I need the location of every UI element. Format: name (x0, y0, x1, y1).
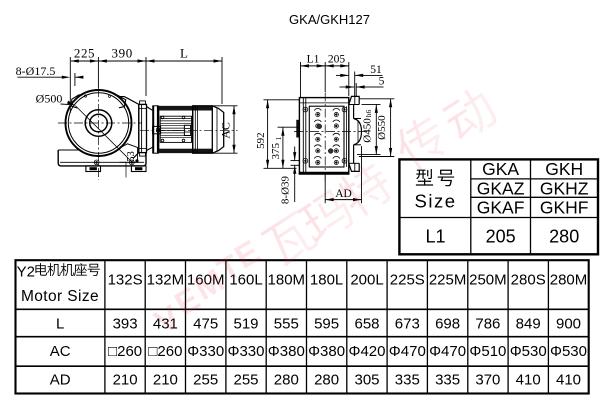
svg-text:h6: h6 (364, 110, 373, 118)
svg-text:1: 1 (275, 136, 283, 140)
svg-text:555: 555 (274, 315, 299, 332)
svg-text:Φ510: Φ510 (469, 343, 506, 360)
svg-text:673: 673 (395, 315, 420, 332)
svg-text:210: 210 (153, 372, 178, 389)
svg-text:GKHF: GKHF (540, 198, 589, 218)
svg-text:51: 51 (370, 64, 382, 76)
svg-text:180L: 180L (310, 271, 343, 288)
svg-text:8-Ø39: 8-Ø39 (280, 175, 292, 204)
svg-text:250M: 250M (469, 271, 507, 288)
svg-text:Φ530: Φ530 (510, 343, 547, 360)
svg-text:225S: 225S (390, 271, 425, 288)
svg-text:390: 390 (112, 46, 133, 61)
svg-text:200L: 200L (350, 271, 383, 288)
svg-text:225M: 225M (429, 271, 467, 288)
svg-text:Φ330: Φ330 (228, 343, 265, 360)
svg-text:GKA: GKA (482, 159, 519, 179)
svg-text:8-Ø17.5: 8-Ø17.5 (16, 64, 56, 78)
svg-text:475: 475 (193, 315, 218, 332)
svg-text:205: 205 (328, 53, 346, 65)
svg-text:132S: 132S (108, 271, 143, 288)
svg-text:305: 305 (354, 372, 379, 389)
svg-text:595: 595 (314, 315, 339, 332)
svg-text:Y2: Y2 (17, 264, 35, 281)
svg-text:AC: AC (219, 122, 233, 139)
svg-text:335: 335 (435, 372, 460, 389)
svg-text:AC: AC (50, 343, 71, 360)
svg-text:L1: L1 (425, 226, 445, 246)
svg-text:Φ470: Φ470 (389, 343, 426, 360)
svg-text:592: 592 (255, 132, 267, 149)
svg-text:Ø500: Ø500 (36, 91, 63, 105)
svg-text:Φ470: Φ470 (429, 343, 466, 360)
svg-text:786: 786 (475, 315, 500, 332)
svg-text:335: 335 (395, 372, 420, 389)
svg-text:Φ330: Φ330 (187, 343, 224, 360)
svg-text:GKA/GKH127: GKA/GKH127 (289, 12, 370, 27)
svg-text:Ø550: Ø550 (376, 115, 388, 140)
svg-text:280: 280 (314, 372, 339, 389)
svg-text:AD: AD (50, 372, 71, 389)
svg-text:849: 849 (516, 315, 541, 332)
svg-text:280: 280 (274, 372, 299, 389)
svg-text:GKH: GKH (545, 159, 583, 179)
svg-text:Φ380: Φ380 (268, 343, 305, 360)
svg-text:5: 5 (379, 76, 385, 88)
svg-text:280S: 280S (511, 271, 546, 288)
svg-text:225: 225 (74, 46, 95, 61)
svg-text:280: 280 (549, 226, 579, 246)
svg-text:Φ380: Φ380 (308, 343, 345, 360)
svg-text:370: 370 (475, 372, 500, 389)
svg-text:L1: L1 (307, 53, 320, 65)
svg-text:375: 375 (270, 142, 282, 159)
svg-text:205: 205 (486, 226, 516, 246)
svg-text:Φ420: Φ420 (349, 343, 386, 360)
svg-text:GKAZ: GKAZ (477, 178, 525, 198)
svg-text:900: 900 (556, 315, 581, 332)
svg-text:GKAF: GKAF (477, 198, 525, 218)
svg-text:410: 410 (556, 372, 581, 389)
svg-text:255: 255 (233, 372, 258, 389)
svg-text:698: 698 (435, 315, 460, 332)
svg-text:180M: 180M (268, 271, 306, 288)
svg-text:280M: 280M (550, 271, 588, 288)
svg-text:519: 519 (233, 315, 258, 332)
svg-text:410: 410 (516, 372, 541, 389)
svg-text:255: 255 (193, 372, 218, 389)
svg-text:□260: □260 (108, 343, 142, 360)
svg-text:658: 658 (354, 315, 379, 332)
svg-text:GKHZ: GKHZ (540, 178, 589, 198)
svg-text:L: L (56, 315, 64, 332)
svg-text:Φ530: Φ530 (550, 343, 587, 360)
svg-text:393: 393 (113, 315, 138, 332)
svg-text:Motor Size: Motor Size (21, 288, 99, 305)
svg-text:Ø450: Ø450 (362, 118, 374, 143)
svg-text:210: 210 (113, 372, 138, 389)
svg-text:□260: □260 (148, 343, 182, 360)
svg-text:L: L (180, 46, 188, 61)
svg-text:Size: Size (415, 191, 457, 212)
